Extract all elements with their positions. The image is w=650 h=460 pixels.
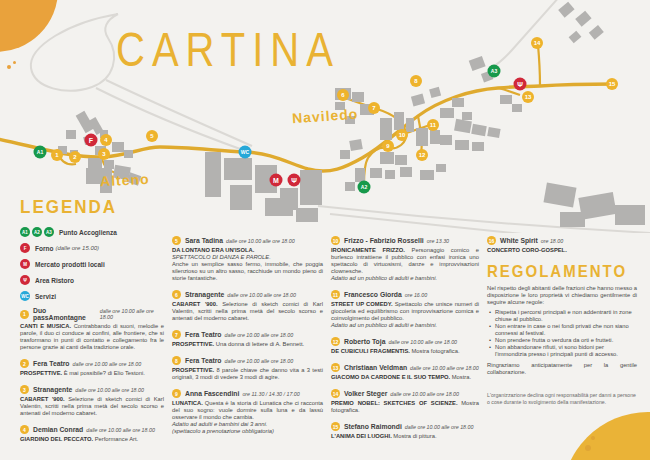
entry-time: dalle ore 10.00 alle ore 18.00 — [225, 358, 294, 364]
program-entry: 2Fera Teatrodalle ore 10.00 alle ore 18.… — [20, 359, 164, 377]
entry-description: Performance Art. — [95, 436, 139, 442]
entry-time: dalle ore 10.00 alle ore 18.00 — [226, 238, 295, 244]
entry-number-badge: 3 — [20, 385, 29, 394]
entry-body: CANTI E MUSICA. Contrabbando di suoni, m… — [20, 323, 164, 351]
rules-intro: Nel rispetto degli abitanti delle frazio… — [487, 285, 637, 306]
entry-description: È mai possibile? di Elio Testoni. — [64, 370, 145, 376]
entry-time: dalle ore 10.00 alle ore 18.00 — [405, 424, 474, 430]
program-col-3: 10Frizzo - Fabrizio Rosselliore 13.30IRO… — [331, 236, 479, 440]
entry-time: dalle ore 10.00 alle ore 18.00 — [86, 427, 155, 433]
entry-header: 12Roberto Tojadalle ore 10.00 alle ore 1… — [331, 337, 479, 346]
map-marker-yellow-4[interactable]: 4 — [100, 134, 112, 146]
entry-note: Adatto ad un pubblico di adulti e bambin… — [331, 322, 479, 329]
entry-number-badge: 2 — [20, 359, 29, 368]
map-marker-yellow-9[interactable]: 9 — [382, 140, 394, 152]
entry-artist-name: Duo passAmontagne — [33, 307, 97, 321]
entry-number-badge: 1 — [20, 310, 29, 319]
rules-thanks: Ringraziamo anticipatamente per la genti… — [487, 362, 637, 376]
map-marker-green-A3[interactable]: A3 — [488, 65, 501, 78]
entry-body: GIARDINO DEL PECCATO. Performance Art. — [20, 436, 164, 443]
legend-badge-red: M — [20, 259, 30, 269]
entry-artist-name: Fera Teatro — [185, 357, 222, 364]
legend-item: ΨArea Ristoro — [20, 275, 164, 285]
entry-time: ore 18.00 — [541, 238, 563, 244]
entry-artist-name: Fera Teatro — [185, 331, 222, 338]
entry-artist-name: Fera Teatro — [33, 360, 70, 367]
program-entry: 3Stranagentedalle ore 10.00 alle ore 18.… — [20, 385, 164, 417]
entry-number-badge: 16 — [487, 236, 496, 245]
entry-note: Adatto ad adulti e bambini dai 3 anni. — [172, 421, 323, 428]
map-marker-yellow-14[interactable]: 14 — [531, 37, 543, 49]
entry-artist-name: White Spirit — [500, 237, 538, 244]
entry-header: 5Sara Tadinadalle ore 10.00 alle ore 18.… — [172, 236, 323, 245]
map-marker-yellow-6[interactable]: 6 — [337, 89, 349, 101]
rules-bullet: Non abbandonare rifiuti, vi sono bidoni … — [489, 344, 637, 358]
map-marker-yellow-15[interactable]: 15 — [606, 78, 618, 90]
entry-show-title: CABARET '900. — [172, 301, 222, 307]
legend-item: A1A2A3Punto Accoglienza — [20, 227, 164, 237]
entry-description: Mostra di pittura. — [393, 433, 436, 439]
entry-artist-name: Francesco Giorda — [344, 291, 402, 298]
entry-artist-name: Sara Tadina — [185, 237, 223, 244]
map-marker-yellow-10[interactable]: 10 — [396, 129, 408, 141]
entry-header: 7Fera Teatrodalle ore 10.00 alle ore 18.… — [172, 330, 323, 339]
entry-header: 2Fera Teatrodalle ore 10.00 alle ore 18.… — [20, 359, 164, 368]
map-marker-yellow-12[interactable]: 12 — [416, 149, 428, 161]
entry-time: dalle ore 10.00 alle ore 18.00 — [227, 292, 296, 298]
entry-time: dalle ore 10.00 alle ore 18.00 — [75, 387, 144, 393]
legend-badge-green: A3 — [44, 227, 54, 237]
entry-body: CABARET '900. Selezione di sketch comici… — [172, 301, 323, 322]
entry-header: 8Fera Teatrodalle ore 10.00 alle ore 18.… — [172, 356, 323, 365]
program-entry: 10Frizzo - Fabrizio Rosselliore 13.30IRO… — [331, 236, 479, 282]
entry-show-subtitle: SPETTACOLO DI DANZA E PAROLE. — [172, 254, 323, 261]
program-entry: 15Stefano Raimondidalle ore 10.00 alle o… — [331, 422, 479, 440]
program-col-1: 1Duo passAmontagnedalle ore 10.00 alle o… — [20, 307, 164, 443]
entry-body: PROSPETTIVE. 8 parole chiave che danno v… — [172, 367, 323, 381]
program-entry: 8Fera Teatrodalle ore 10.00 alle ore 18.… — [172, 356, 323, 381]
entry-artist-name: Frizzo - Fabrizio Rosselli — [344, 237, 424, 244]
map-marker-green-A2[interactable]: A2 — [358, 181, 371, 194]
legend-column: LEGENDA A1A2A3Punto AccoglienzaFForno(da… — [20, 197, 164, 451]
legend-badge-blue: WC — [20, 291, 30, 301]
entry-body: STREET UP COMEDY. Spettacolo che unisce … — [331, 301, 479, 329]
entry-show-title: PROSPETTIVE. — [172, 367, 217, 373]
rules-heading: REGOLAMENTO — [487, 261, 637, 280]
entry-number-badge: 8 — [172, 356, 181, 365]
legend-item-label: Forno — [35, 245, 53, 252]
decor-dot — [591, 436, 595, 440]
brochure-page: CARTINA Alteno Naviledo A1A2A3FMΨΨWC1234… — [0, 0, 650, 460]
entry-time: dalle ore 10.00 alle ore 18.00 — [390, 391, 459, 397]
map-marker-blue-WC[interactable]: WC — [239, 146, 252, 159]
map-marker-red-Ψ[interactable]: Ψ — [288, 174, 301, 187]
legend-heading: LEGENDA — [20, 196, 164, 218]
entry-description: Anche un semplice sasso fermo, immobile,… — [172, 261, 323, 281]
entry-artist-name: Stranagente — [33, 386, 72, 393]
entry-body: PROSPETTIVE. È mai possibile? di Elio Te… — [20, 370, 164, 377]
entry-show-title: L'ANIMA DEI LUOGHI. — [331, 433, 393, 439]
entry-number-badge: 13 — [331, 363, 340, 372]
program-col-2: 5Sara Tadinadalle ore 10.00 alle ore 18.… — [172, 236, 323, 435]
entry-artist-name: Volker Steger — [344, 390, 387, 397]
entry-show-title: CANTI E MUSICA. — [20, 323, 74, 329]
entry-show-title: IRONICAMENTE FRIZZO. — [331, 247, 412, 253]
legend-item-label: Mercato prodotti locali — [35, 261, 105, 268]
map-marker-red-M[interactable]: M — [270, 174, 283, 187]
rules-disclaimer: L'organizzazione declina ogni responsabi… — [487, 392, 637, 405]
entry-note: (spettacolo a prenotazione obbligatoria) — [172, 428, 323, 435]
map-marker-yellow-13[interactable]: 13 — [522, 91, 534, 103]
entry-show-title: STREET UP COMEDY. — [331, 301, 395, 307]
entry-artist-name: Stefano Raimondi — [344, 423, 402, 430]
entry-show-title: PROSPETTIVE. — [172, 341, 216, 347]
legend-badge-green: A2 — [32, 227, 42, 237]
legend-item: MMercato prodotti locali — [20, 259, 164, 269]
entry-show-title: DA LONTANO ERA UN'ISOLA. — [172, 247, 254, 253]
entry-artist-name: Christiaan Veldman — [344, 364, 407, 371]
program-entry: 5Sara Tadinadalle ore 10.00 alle ore 18.… — [172, 236, 323, 282]
entry-show-title: GIACOMO DA CARDONE E IL SUO TEMPO. — [331, 374, 452, 380]
corner-blob-bottom-right — [562, 412, 650, 460]
entry-number-badge: 14 — [331, 389, 340, 398]
entry-artist-name: Anna Fascendini — [185, 390, 239, 397]
entry-show-title: DE CUBICULI FRAGMENTIS. — [331, 348, 412, 354]
entry-body: CABARET '900. Selezione di sketch comici… — [20, 396, 164, 417]
program-entry: 4Demian Conraddalle ore 10.00 alle ore 1… — [20, 425, 164, 443]
entry-time: dalle ore 10.00 alle ore 18.00 — [73, 361, 142, 367]
entry-time: dalle ore 10.00 alle ore 18.00 — [100, 308, 164, 320]
entry-time: ore 13.30 — [427, 238, 449, 244]
program-entry: 13Christiaan Veldmandalle ore 10.00 alle… — [331, 363, 479, 381]
program-column-3: 10Frizzo - Fabrizio Rosselliore 13.30IRO… — [331, 236, 479, 448]
entry-number-badge: 10 — [331, 236, 340, 245]
entry-header: 4Demian Conraddalle ore 10.00 alle ore 1… — [20, 425, 164, 434]
map-marker-yellow-7[interactable]: 7 — [368, 102, 380, 114]
entry-time: dalle ore 10.00 alle ore 18.00 — [225, 332, 294, 338]
entry-header: 3Stranagentedalle ore 10.00 alle ore 18.… — [20, 385, 164, 394]
entry-show-title: PREMIO NOBEL: SKETCHES OF SCIENZE. — [331, 400, 461, 406]
entry-number-badge: 9 — [172, 389, 181, 398]
legend-item-label: Area Ristoro — [35, 277, 74, 284]
entry-header: 13Christiaan Veldmandalle ore 10.00 alle… — [331, 363, 479, 372]
entry-header: 11Francesco Giordaore 16.00 — [331, 290, 479, 299]
entry-description: Una donna di lettere di A. Bennett. — [216, 341, 304, 347]
entry-description: Mostra. — [452, 374, 471, 380]
entry-body: GIACOMO DA CARDONE E IL SUO TEMPO. Mostr… — [331, 374, 479, 381]
entry-body: DA LONTANO ERA UN'ISOLA. SPETTACOLO DI D… — [172, 247, 323, 282]
entry-number-badge: 11 — [331, 290, 340, 299]
rules-bullet: Rispetta i percorsi principali e non add… — [489, 309, 637, 323]
entry-number-badge: 6 — [172, 290, 181, 299]
legend-item: FForno(dalle ore 15.00) — [20, 243, 164, 253]
entry-body: CONCERTO CORO-GOSPEL. — [487, 247, 637, 254]
rules-bullet: Non entrare in case o nei fondi privati … — [489, 323, 637, 337]
program-col-4: 16White Spiritore 18.00CONCERTO CORO-GOS… — [487, 236, 637, 254]
entry-time: ore 11.30 / 14.30 / 17.00 — [242, 391, 299, 397]
legend-badge-red: F — [20, 243, 30, 253]
entry-header: 9Anna Fascendiniore 11.30 / 14.30 / 17.0… — [172, 389, 323, 398]
entry-number-badge: 5 — [172, 236, 181, 245]
entry-show-title: LUNATICA. — [172, 400, 205, 406]
entry-header: 15Stefano Raimondidalle ore 10.00 alle o… — [331, 422, 479, 431]
entry-artist-name: Demian Conrad — [33, 426, 83, 433]
program-entry: 6Stranagentedalle ore 10.00 alle ore 18.… — [172, 290, 323, 322]
entry-time: dalle ore 10.00 alle ore 18.00 — [388, 339, 457, 345]
entry-time: ore 16.00 — [405, 292, 427, 298]
program-entry: 7Fera Teatrodalle ore 10.00 alle ore 18.… — [172, 330, 323, 348]
map-marker-yellow-5[interactable]: 5 — [146, 130, 158, 142]
legend-badge-green: A1 — [20, 227, 30, 237]
entry-header: 10Frizzo - Fabrizio Rosselliore 13.30 — [331, 236, 479, 245]
entry-body: L'ANIMA DEI LUOGHI. Mostra di pittura. — [331, 433, 479, 440]
map-marker-yellow-2[interactable]: 2 — [69, 151, 81, 163]
entry-header: 16White Spiritore 18.00 — [487, 236, 637, 245]
entry-show-title: CABARET '900. — [20, 396, 68, 402]
entry-artist-name: Stranagente — [185, 291, 224, 298]
legend-list: A1A2A3Punto AccoglienzaFForno(dalle ore … — [20, 227, 164, 301]
entry-body: LUNATICA. Questa è la storia di Lunatica… — [172, 400, 323, 435]
program-entry: 14Volker Stegerdalle ore 10.00 alle ore … — [331, 389, 479, 414]
entry-body: DE CUBICULI FRAGMENTIS. Mostra fotografi… — [331, 348, 479, 355]
program-column-2: 5Sara Tadinadalle ore 10.00 alle ore 18.… — [172, 236, 323, 443]
legend-item: WCServizi — [20, 291, 164, 301]
legend-item-label: Servizi — [35, 293, 56, 300]
entry-number-badge: 4 — [20, 425, 29, 434]
map-marker-yellow-11[interactable]: 11 — [427, 119, 439, 131]
decor-dot — [585, 445, 591, 451]
entry-show-title: PROSPETTIVE. — [20, 370, 64, 376]
rules-list: Rispetta i percorsi principali e non add… — [487, 309, 637, 358]
entry-artist-name: Roberto Toja — [344, 338, 385, 345]
legend-item-label: Punto Accoglienza — [59, 229, 117, 236]
entry-body: IRONICAMENTE FRIZZO. Personaggio comico … — [331, 247, 479, 282]
entry-body: PREMIO NOBEL: SKETCHES OF SCIENZE. Mostr… — [331, 400, 479, 414]
map-marker-yellow-8[interactable]: 8 — [410, 75, 422, 87]
map-marker-yellow-3[interactable]: 3 — [98, 148, 110, 160]
entry-time: dalle ore 10.00 alle ore 18.00 — [410, 365, 479, 371]
rules-bullet: Non prendere frutta o verdura da orti e … — [489, 337, 637, 344]
entry-show-title: CONCERTO CORO-GOSPEL. — [487, 247, 567, 253]
program-entry: 12Roberto Tojadalle ore 10.00 alle ore 1… — [331, 337, 479, 355]
entry-number-badge: 15 — [331, 422, 340, 431]
legend-item-suffix: (dalle ore 15.00) — [55, 245, 99, 251]
entry-header: 14Volker Stegerdalle ore 10.00 alle ore … — [331, 389, 479, 398]
entry-number-badge: 7 — [172, 330, 181, 339]
rules-column: 16White Spiritore 18.00CONCERTO CORO-GOS… — [487, 236, 637, 405]
program-entry: 16White Spiritore 18.00CONCERTO CORO-GOS… — [487, 236, 637, 254]
program-entry: 9Anna Fascendiniore 11.30 / 14.30 / 17.0… — [172, 389, 323, 435]
legend-badge-red: Ψ — [20, 275, 30, 285]
entry-body: PROSPETTIVE. Una donna di lettere di A. … — [172, 341, 323, 348]
map-marker-red-F[interactable]: F — [85, 134, 98, 147]
entry-description: Mostra fotografica. — [412, 348, 460, 354]
map-marker-yellow-1[interactable]: 1 — [51, 149, 63, 161]
map-marker-green-A1[interactable]: A1 — [34, 146, 47, 159]
program-entry: 1Duo passAmontagnedalle ore 10.00 alle o… — [20, 307, 164, 351]
program-entry: 11Francesco Giordaore 16.00STREET UP COM… — [331, 290, 479, 329]
entry-header: 1Duo passAmontagnedalle ore 10.00 alle o… — [20, 307, 164, 321]
entry-show-title: GIARDINO DEL PECCATO. — [20, 436, 95, 442]
entry-number-badge: 12 — [331, 337, 340, 346]
entry-note: Adatto ad un pubblico di adulti e bambin… — [331, 275, 479, 282]
map-marker-red-Ψ[interactable]: Ψ — [514, 78, 527, 91]
entry-header: 6Stranagentedalle ore 10.00 alle ore 18.… — [172, 290, 323, 299]
